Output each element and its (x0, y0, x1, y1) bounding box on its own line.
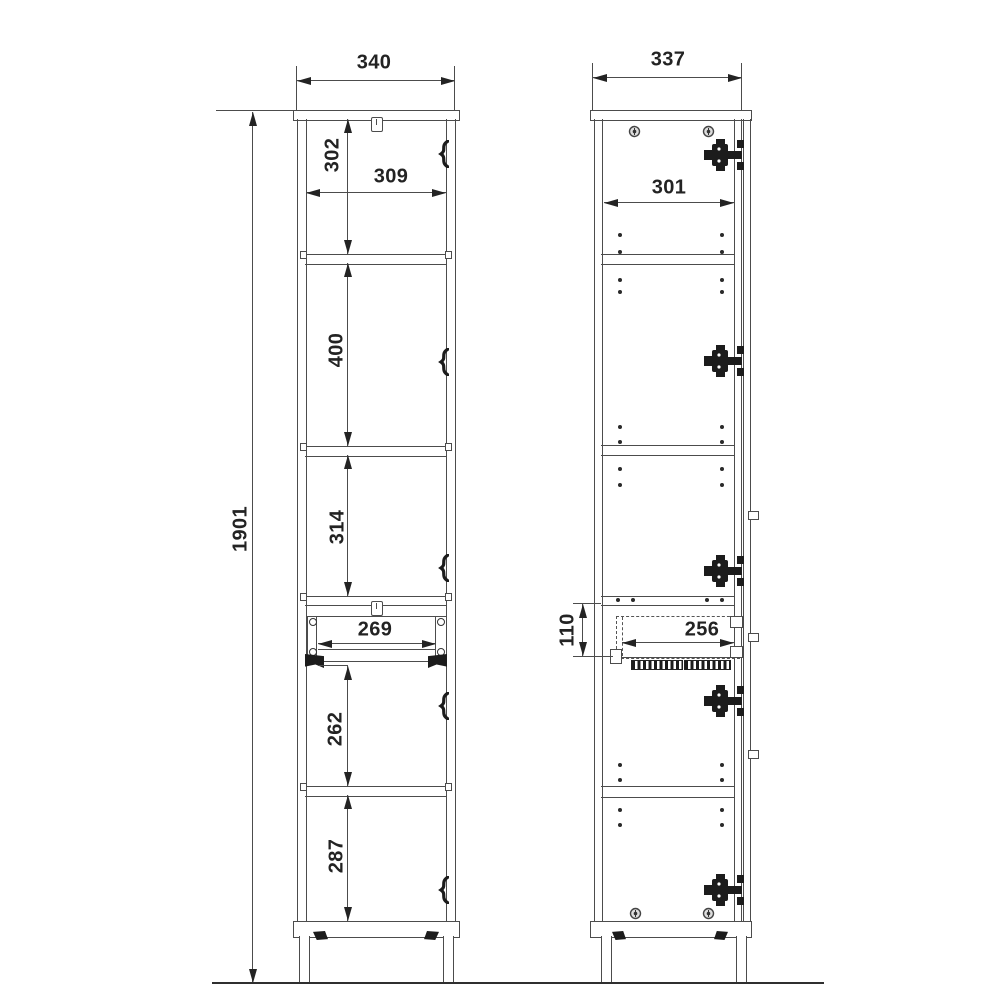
arrowhead-icon (318, 640, 332, 648)
dim-label-overall-width: 340 (357, 52, 392, 75)
extension-line (454, 66, 455, 111)
extension-line (296, 66, 297, 111)
back-panel (594, 119, 603, 922)
shelf (305, 254, 446, 265)
arrowhead-icon (297, 77, 311, 85)
hinge-icon (704, 874, 744, 906)
dimension-line (604, 202, 734, 203)
hinge-icon (704, 555, 744, 587)
arrowhead-icon (720, 199, 734, 207)
dim-label-interior-depth: 301 (652, 177, 687, 200)
dim-label-drawer-depth: 256 (685, 619, 720, 642)
dim-label-bottom-section: 287 (326, 839, 349, 874)
dimension-line (622, 642, 734, 643)
dim-label-interior-width: 309 (374, 166, 409, 189)
dim-label-lower-middle: 314 (327, 510, 350, 545)
dimension-line (306, 192, 446, 193)
rail-screw-hole (616, 598, 620, 602)
dimension-line (297, 80, 455, 81)
shelf-pin-hole (720, 425, 724, 429)
arrowhead-icon (344, 666, 352, 680)
dim-label-upper-middle: 400 (326, 333, 349, 368)
arrowhead-icon (441, 77, 455, 85)
arrowhead-icon (344, 263, 352, 277)
shelf-pin-hole (618, 763, 622, 767)
shelf-pin-hole (720, 763, 724, 767)
shelf-pin-hole (618, 278, 622, 282)
rail-screw-hole (720, 598, 724, 602)
dim-label-overall-depth: 337 (651, 49, 686, 72)
shelf-support-icon (300, 251, 307, 259)
screw-icon (629, 907, 642, 920)
hinge-icon (704, 345, 744, 377)
door-panel (743, 119, 751, 922)
arrowhead-icon (344, 432, 352, 446)
shelf-support-icon (300, 593, 307, 601)
shelf-pin-hole (618, 425, 622, 429)
shelf-pin-hole (720, 823, 724, 827)
ground-line (212, 982, 824, 984)
drawer-hidden-outline (616, 616, 740, 659)
shelf-pin-hole (720, 467, 724, 471)
cabinet-leg (443, 936, 454, 983)
dim-label-drawer-width: 269 (358, 619, 393, 642)
door-knob (748, 633, 759, 642)
shelf-support-icon (445, 593, 452, 601)
hinge-icon (437, 876, 449, 904)
arrowhead-icon (432, 189, 446, 197)
top-panel (590, 110, 752, 121)
shelf-pin-hole (618, 823, 622, 827)
dim-label-overall-height: 1901 (230, 506, 253, 552)
arrowhead-icon (344, 795, 352, 809)
shelf (601, 445, 734, 456)
shelf-pin-hole (720, 778, 724, 782)
hinge-icon (437, 692, 449, 720)
mounting-bracket-icon (371, 117, 383, 132)
arrowhead-icon (720, 639, 734, 647)
drawer-slide-rail-icon (631, 660, 683, 670)
right-side-panel (446, 119, 456, 922)
mounting-bracket-icon (371, 601, 383, 616)
cabinet-leg (601, 936, 612, 983)
shelf-support-icon (300, 783, 307, 791)
shelf-support-icon (445, 783, 452, 791)
extension-line (573, 603, 601, 604)
dim-label-top-section: 302 (322, 138, 345, 173)
shelf-pin-hole (618, 233, 622, 237)
dimension-line (593, 77, 742, 78)
drawer-rail (435, 617, 436, 658)
screw-icon (702, 907, 715, 920)
hinge-icon (704, 685, 744, 717)
shelf-pin-hole (720, 278, 724, 282)
drawer-slide-bracket-icon (428, 654, 447, 668)
cabinet-leg (736, 936, 747, 983)
arrowhead-icon (579, 604, 587, 618)
arrowhead-icon (249, 969, 257, 983)
hinge-icon (437, 554, 449, 582)
shelf (601, 254, 734, 265)
rail-screw-hole (631, 598, 635, 602)
arrowhead-icon (344, 907, 352, 921)
shelf-support-icon (445, 251, 452, 259)
technical-drawing-canvas: 340 1901 (0, 0, 1000, 1000)
shelf-pin-hole (720, 290, 724, 294)
door-knob (748, 750, 759, 759)
drawer-hidden-line (622, 617, 623, 656)
arrowhead-icon (344, 772, 352, 786)
shelf-pin-hole (720, 483, 724, 487)
screw-icon (702, 125, 715, 138)
drawer-screw-icon (309, 618, 317, 626)
drawer-front-bracket (730, 616, 743, 628)
dimension-line (347, 119, 348, 254)
hinge-icon (437, 348, 449, 376)
shelf (305, 446, 446, 457)
shelf (305, 786, 446, 797)
dimension-line (318, 643, 436, 644)
rail-screw-hole (705, 598, 709, 602)
arrowhead-icon (622, 639, 636, 647)
shelf-pin-hole (618, 808, 622, 812)
hinge-icon (704, 139, 744, 171)
shelf-pin-hole (720, 808, 724, 812)
shelf-pin-hole (618, 440, 622, 444)
arrowhead-icon (579, 642, 587, 656)
door-knob (748, 511, 759, 520)
shelf (601, 786, 734, 798)
arrowhead-icon (728, 74, 742, 82)
arrowhead-icon (422, 640, 436, 648)
shelf-support-icon (300, 443, 307, 451)
arrowhead-icon (344, 582, 352, 596)
arrowhead-icon (306, 189, 320, 197)
arrowhead-icon (344, 119, 352, 133)
drawer-compartment-top (601, 596, 734, 606)
shelf-pin-hole (720, 440, 724, 444)
arrowhead-icon (344, 240, 352, 254)
extension-line (216, 110, 296, 111)
cabinet-leg (299, 936, 310, 983)
arrowhead-icon (593, 74, 607, 82)
left-side-panel (297, 119, 307, 922)
hinge-icon (437, 140, 449, 168)
shelf-pin-hole (618, 290, 622, 294)
screw-icon (628, 125, 641, 138)
dim-label-drawer-front-height: 110 (557, 613, 580, 646)
front-edge-panel (734, 119, 742, 922)
extension-line (741, 63, 742, 110)
drawer-bottom-line (318, 649, 435, 650)
arrowhead-icon (344, 455, 352, 469)
shelf-pin-hole (720, 250, 724, 254)
shelf-pin-hole (720, 233, 724, 237)
shelf-pin-hole (618, 483, 622, 487)
shelf-support-icon (445, 443, 452, 451)
dim-label-below-drawer: 262 (325, 712, 348, 747)
extension-line (592, 63, 593, 110)
drawer-slide-line (324, 661, 428, 662)
shelf-pin-hole (618, 467, 622, 471)
shelf-pin-hole (618, 250, 622, 254)
drawer-slide-line (612, 657, 739, 658)
drawer-screw-icon (437, 618, 445, 626)
drawer-slide-rail-icon (684, 660, 731, 670)
extension-line (573, 656, 613, 657)
arrowhead-icon (604, 199, 618, 207)
arrowhead-icon (249, 112, 257, 126)
shelf-pin-hole (618, 778, 622, 782)
